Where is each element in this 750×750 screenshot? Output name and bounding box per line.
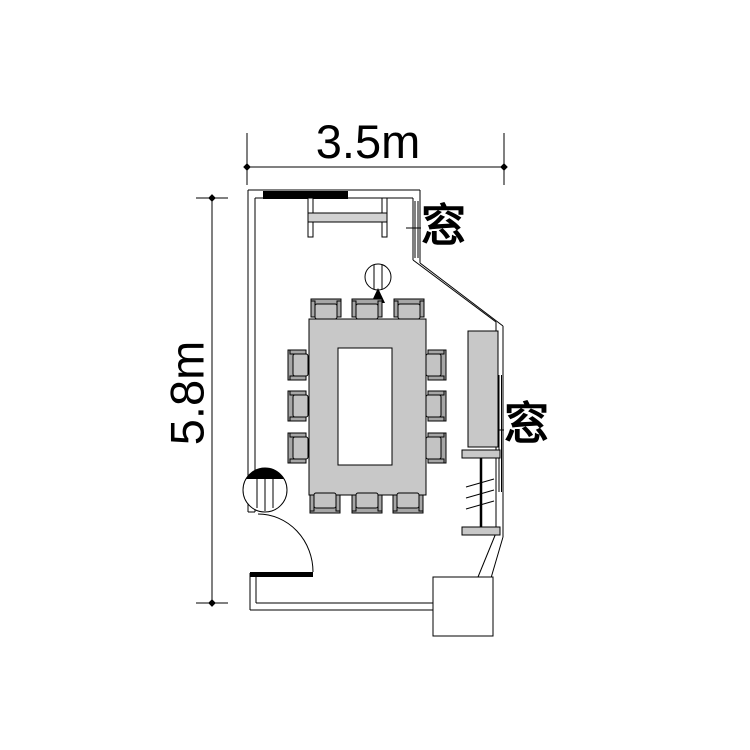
chair-right-2 [426,391,446,421]
wall-board [263,191,348,199]
blind-bar-top [462,450,500,458]
wall-diagonal-top-inner [413,260,496,322]
wall-diagonal-bottom-outer [491,537,503,578]
wall-door-stop-thick [250,572,313,577]
wall-diagonal-top-outer [420,263,503,326]
chair-bottom-2 [352,493,382,513]
chair-top-3 [394,299,424,319]
conference-table [309,319,426,495]
side-board [468,331,498,447]
dimension-width-label: 3.5m [316,118,421,165]
projector-circle [365,264,391,290]
door-swing-arc [258,514,313,572]
chair-bottom-3 [393,493,423,513]
window-label-right: 窓 [504,401,549,446]
entrance-post-filled-segment [246,468,284,479]
chair-top-1 [311,299,341,319]
window-label-top: 窓 [421,203,466,248]
blind-bar-bottom [462,527,500,535]
walls [248,190,503,610]
projection-screen [308,198,387,237]
chair-left-2 [288,391,308,421]
chair-right-1 [426,350,446,380]
chair-top-2 [352,299,382,319]
chair-left-1 [288,350,308,380]
screen-bar [308,213,387,222]
chair-bottom-1 [310,493,340,513]
projector-symbol [365,264,391,303]
pillar-box [433,577,493,636]
floor-plan-drawing [0,0,750,750]
floor-plan-canvas: 3.5m 5.8m 窓 窓 [0,0,750,750]
entrance-post-symbol [243,468,287,512]
chair-right-3 [426,433,446,463]
dimension-height-label: 5.8m [164,341,211,446]
chair-left-3 [288,433,308,463]
blind-section-symbol [462,450,500,535]
